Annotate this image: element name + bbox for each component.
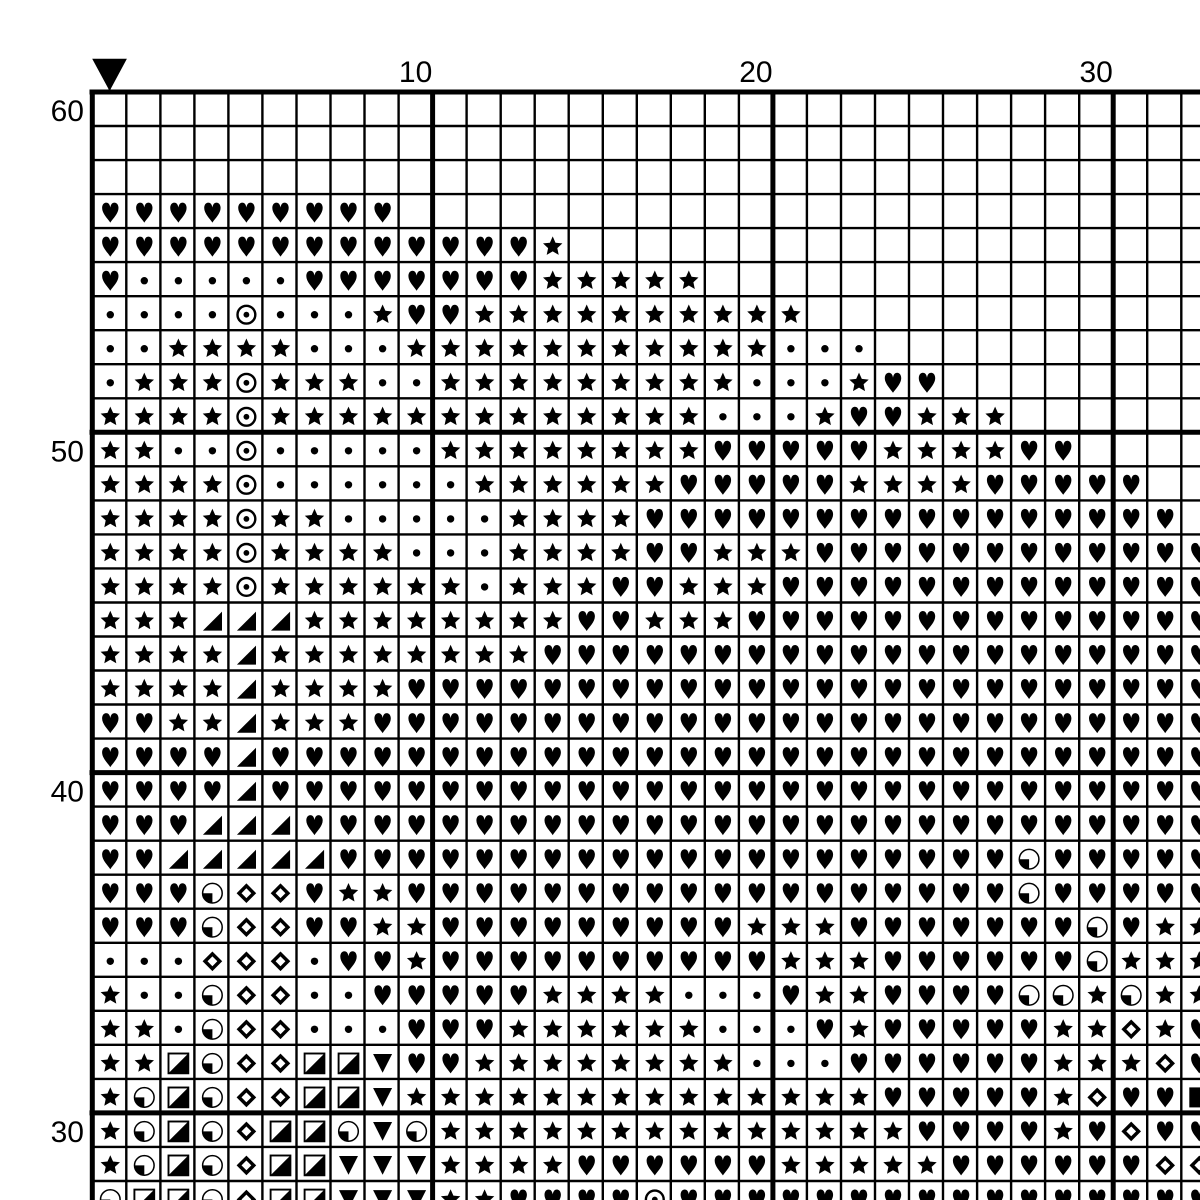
svg-text:20: 20 bbox=[739, 56, 772, 89]
svg-text:30: 30 bbox=[1080, 56, 1113, 89]
svg-text:10: 10 bbox=[399, 56, 432, 89]
svg-text:40: 40 bbox=[51, 776, 84, 809]
svg-text:60: 60 bbox=[51, 95, 84, 128]
svg-text:30: 30 bbox=[51, 1116, 84, 1149]
svg-text:50: 50 bbox=[51, 435, 84, 468]
